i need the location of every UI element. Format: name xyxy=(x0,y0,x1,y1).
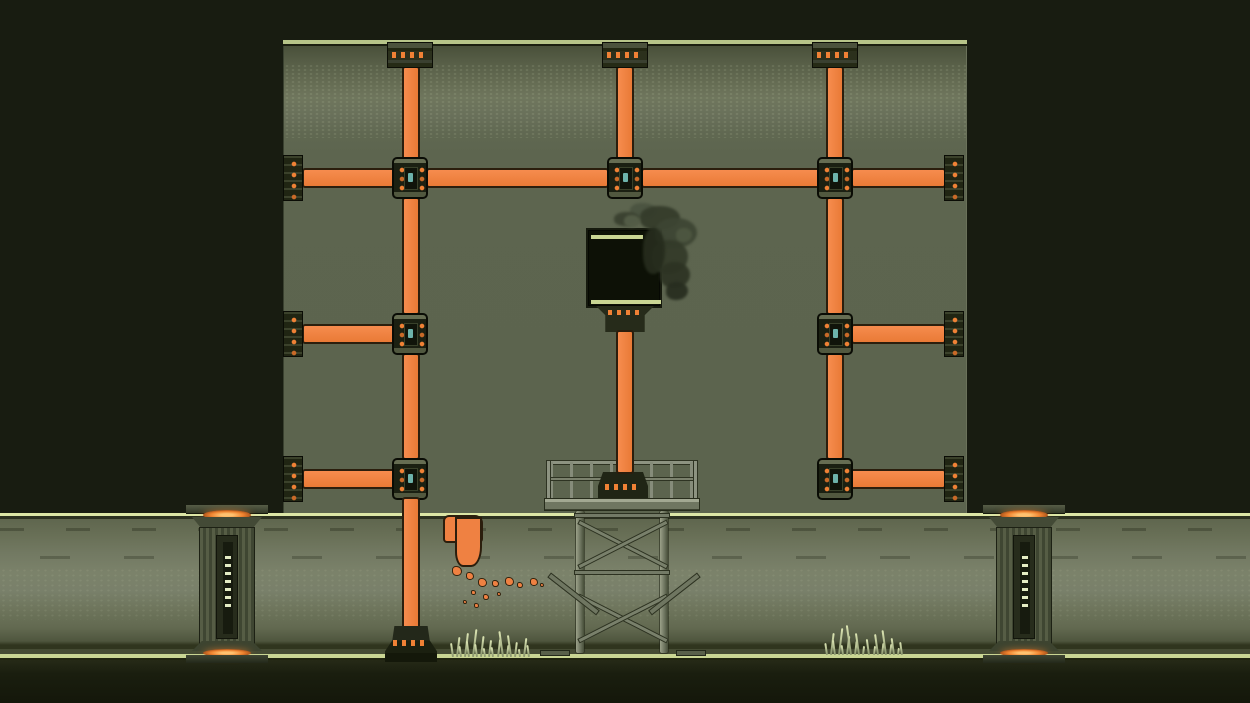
pipe-junction-tee[interactable] xyxy=(817,313,853,355)
paint-splatter-dot xyxy=(452,566,462,576)
mount-lights xyxy=(392,52,428,58)
orange-pipe-segment[interactable] xyxy=(616,66,634,160)
grass-tuft xyxy=(492,625,532,657)
wall-flange-right[interactable] xyxy=(944,311,964,357)
orange-pipe-segment[interactable] xyxy=(616,330,634,474)
paint-splatter-dot xyxy=(492,580,499,587)
furnace-bottom-light-strip xyxy=(591,300,661,304)
wall-flange-left[interactable] xyxy=(283,311,303,357)
scaffold-foot-pad xyxy=(676,650,706,656)
orange-pipe-segment[interactable] xyxy=(851,168,946,188)
grass-blade xyxy=(832,640,836,655)
grass-blade xyxy=(474,644,478,657)
pipe-junction-cross[interactable] xyxy=(607,157,643,199)
orange-pipe-segment[interactable] xyxy=(402,353,420,460)
grass-blade xyxy=(491,647,494,657)
orange-pipe-segment[interactable] xyxy=(851,324,946,344)
paint-splatter-dot xyxy=(463,600,467,604)
connector-lights xyxy=(608,310,642,315)
grass-blade xyxy=(824,643,828,655)
pipe-junction-tee[interactable] xyxy=(392,458,428,500)
grass-blade xyxy=(526,645,530,657)
pipe-junction-elbow[interactable] xyxy=(817,458,853,500)
orange-pipe-segment[interactable] xyxy=(402,497,420,630)
paint-splatter-dot xyxy=(466,572,474,580)
orange-pipe-segment[interactable] xyxy=(849,469,946,489)
paint-splatter-dot xyxy=(497,592,501,596)
wall-flange-left[interactable] xyxy=(283,456,303,502)
pillar-center-slot xyxy=(216,535,238,639)
scaffold-horizontal-bar xyxy=(574,513,670,518)
wall-flange-left[interactable] xyxy=(283,155,303,201)
scaffold-foot-pad xyxy=(540,650,570,656)
pipe-junction-cross[interactable] xyxy=(817,157,853,199)
orange-pipe-segment[interactable] xyxy=(426,168,609,188)
grass-blade xyxy=(862,646,865,655)
scaffold-rail-post xyxy=(693,460,698,502)
pipe-end-cap-fixture[interactable] xyxy=(598,472,648,500)
paint-spill-elbow-vertical xyxy=(455,517,482,567)
lower-dark-band xyxy=(0,660,1250,703)
paint-splatter-dot xyxy=(517,582,523,588)
scaffold-platform-deck xyxy=(544,498,700,511)
pillar-center-slot xyxy=(1013,535,1035,639)
orange-pipe-segment[interactable] xyxy=(402,197,420,315)
grass-blade xyxy=(899,642,903,655)
scaffold-right-post xyxy=(660,511,668,653)
scaffold-outrigger-leg xyxy=(547,572,600,615)
pillar-light-strip xyxy=(1022,556,1028,612)
grass-tuft xyxy=(452,625,492,657)
mount-lights xyxy=(607,52,643,58)
orange-pipe-segment[interactable] xyxy=(302,469,396,489)
scaffold-outrigger-leg xyxy=(648,572,701,615)
pillar-base-cap xyxy=(186,655,268,663)
pipe-cap-lights xyxy=(605,484,641,490)
paint-splatter-dot xyxy=(471,590,476,595)
grass-blade xyxy=(483,648,486,657)
smoke-puff xyxy=(624,215,640,227)
orange-pipe-segment[interactable] xyxy=(302,324,396,344)
ceiling-pipe-mount[interactable] xyxy=(387,42,433,68)
grass-blade xyxy=(466,641,470,657)
scaffold-horizontal-bar xyxy=(574,570,670,575)
paint-splatter-dot xyxy=(474,603,479,608)
pillar-light-strip xyxy=(225,556,231,612)
orange-pipe-segment[interactable] xyxy=(402,66,420,160)
ceiling-pipe-mount[interactable] xyxy=(812,42,858,68)
grass-tuft xyxy=(826,623,866,655)
support-pillar-right[interactable] xyxy=(983,505,1065,663)
pipe-junction-tee[interactable] xyxy=(392,313,428,355)
scaffold-rail-post xyxy=(546,460,551,502)
wall-flange-right[interactable] xyxy=(944,155,964,201)
orange-pipe-segment[interactable] xyxy=(302,168,396,188)
paint-splatter-dot xyxy=(483,594,489,600)
wall-flange-right[interactable] xyxy=(944,456,964,502)
pillar-base-cap xyxy=(983,655,1065,663)
support-pillar-left[interactable] xyxy=(186,505,268,663)
orange-pipe-segment[interactable] xyxy=(826,197,844,315)
game-viewport[interactable] xyxy=(0,0,1250,703)
base-fixture-lights xyxy=(393,640,429,646)
pipe-junction-cross[interactable] xyxy=(392,157,428,199)
orange-pipe-segment[interactable] xyxy=(826,353,844,460)
grass-blade xyxy=(518,649,521,657)
paint-splatter-dot xyxy=(505,577,514,586)
paint-splatter-dot xyxy=(478,578,487,587)
furnace-top-light-strip xyxy=(591,235,643,239)
grass-blade xyxy=(841,645,844,655)
scaffold-left-post xyxy=(576,511,584,653)
scaffold-tower[interactable] xyxy=(544,458,704,658)
paint-splatter-dot xyxy=(540,583,544,587)
orange-pipe-segment[interactable] xyxy=(641,168,820,188)
ceiling-pipe-mount[interactable] xyxy=(602,42,648,68)
grass-blade xyxy=(458,646,462,657)
orange-pipe-segment[interactable] xyxy=(826,66,844,160)
paint-splatter-dot xyxy=(530,578,538,586)
mount-lights xyxy=(817,52,853,58)
grass-tuft xyxy=(868,623,908,655)
